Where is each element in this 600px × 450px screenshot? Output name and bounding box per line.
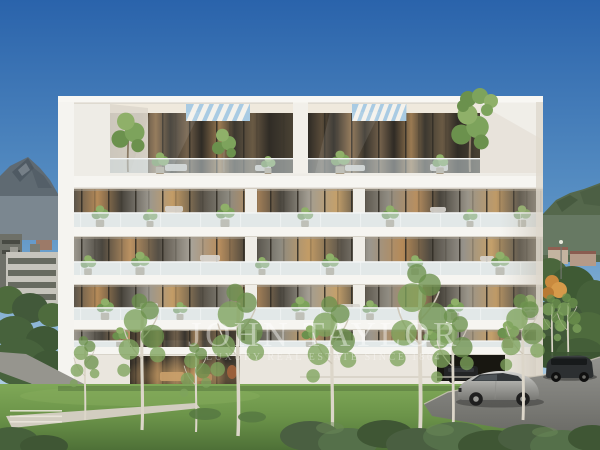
floor-3 [74, 237, 543, 275]
slab-3 [58, 275, 543, 285]
floor-4 [74, 189, 543, 227]
slab-4 [58, 227, 543, 237]
watermark-subtitle: LUXURY REAL ESTATE SINCE 1864 [206, 352, 442, 363]
left-edge-pier [58, 102, 74, 391]
suv-car [543, 356, 597, 383]
building-rendering: JOHN TAYLOR LUXURY REAL ESTATE SINCE 186… [0, 0, 600, 450]
street-lamp [561, 243, 562, 279]
watermark: JOHN TAYLOR LUXURY REAL ESTATE SINCE 186… [188, 315, 460, 363]
rendering-stage: JOHN TAYLOR LUXURY REAL ESTATE SINCE 186… [0, 0, 600, 450]
watermark-title: JOHN TAYLOR [188, 315, 460, 354]
penthouse-fascia [58, 176, 543, 189]
